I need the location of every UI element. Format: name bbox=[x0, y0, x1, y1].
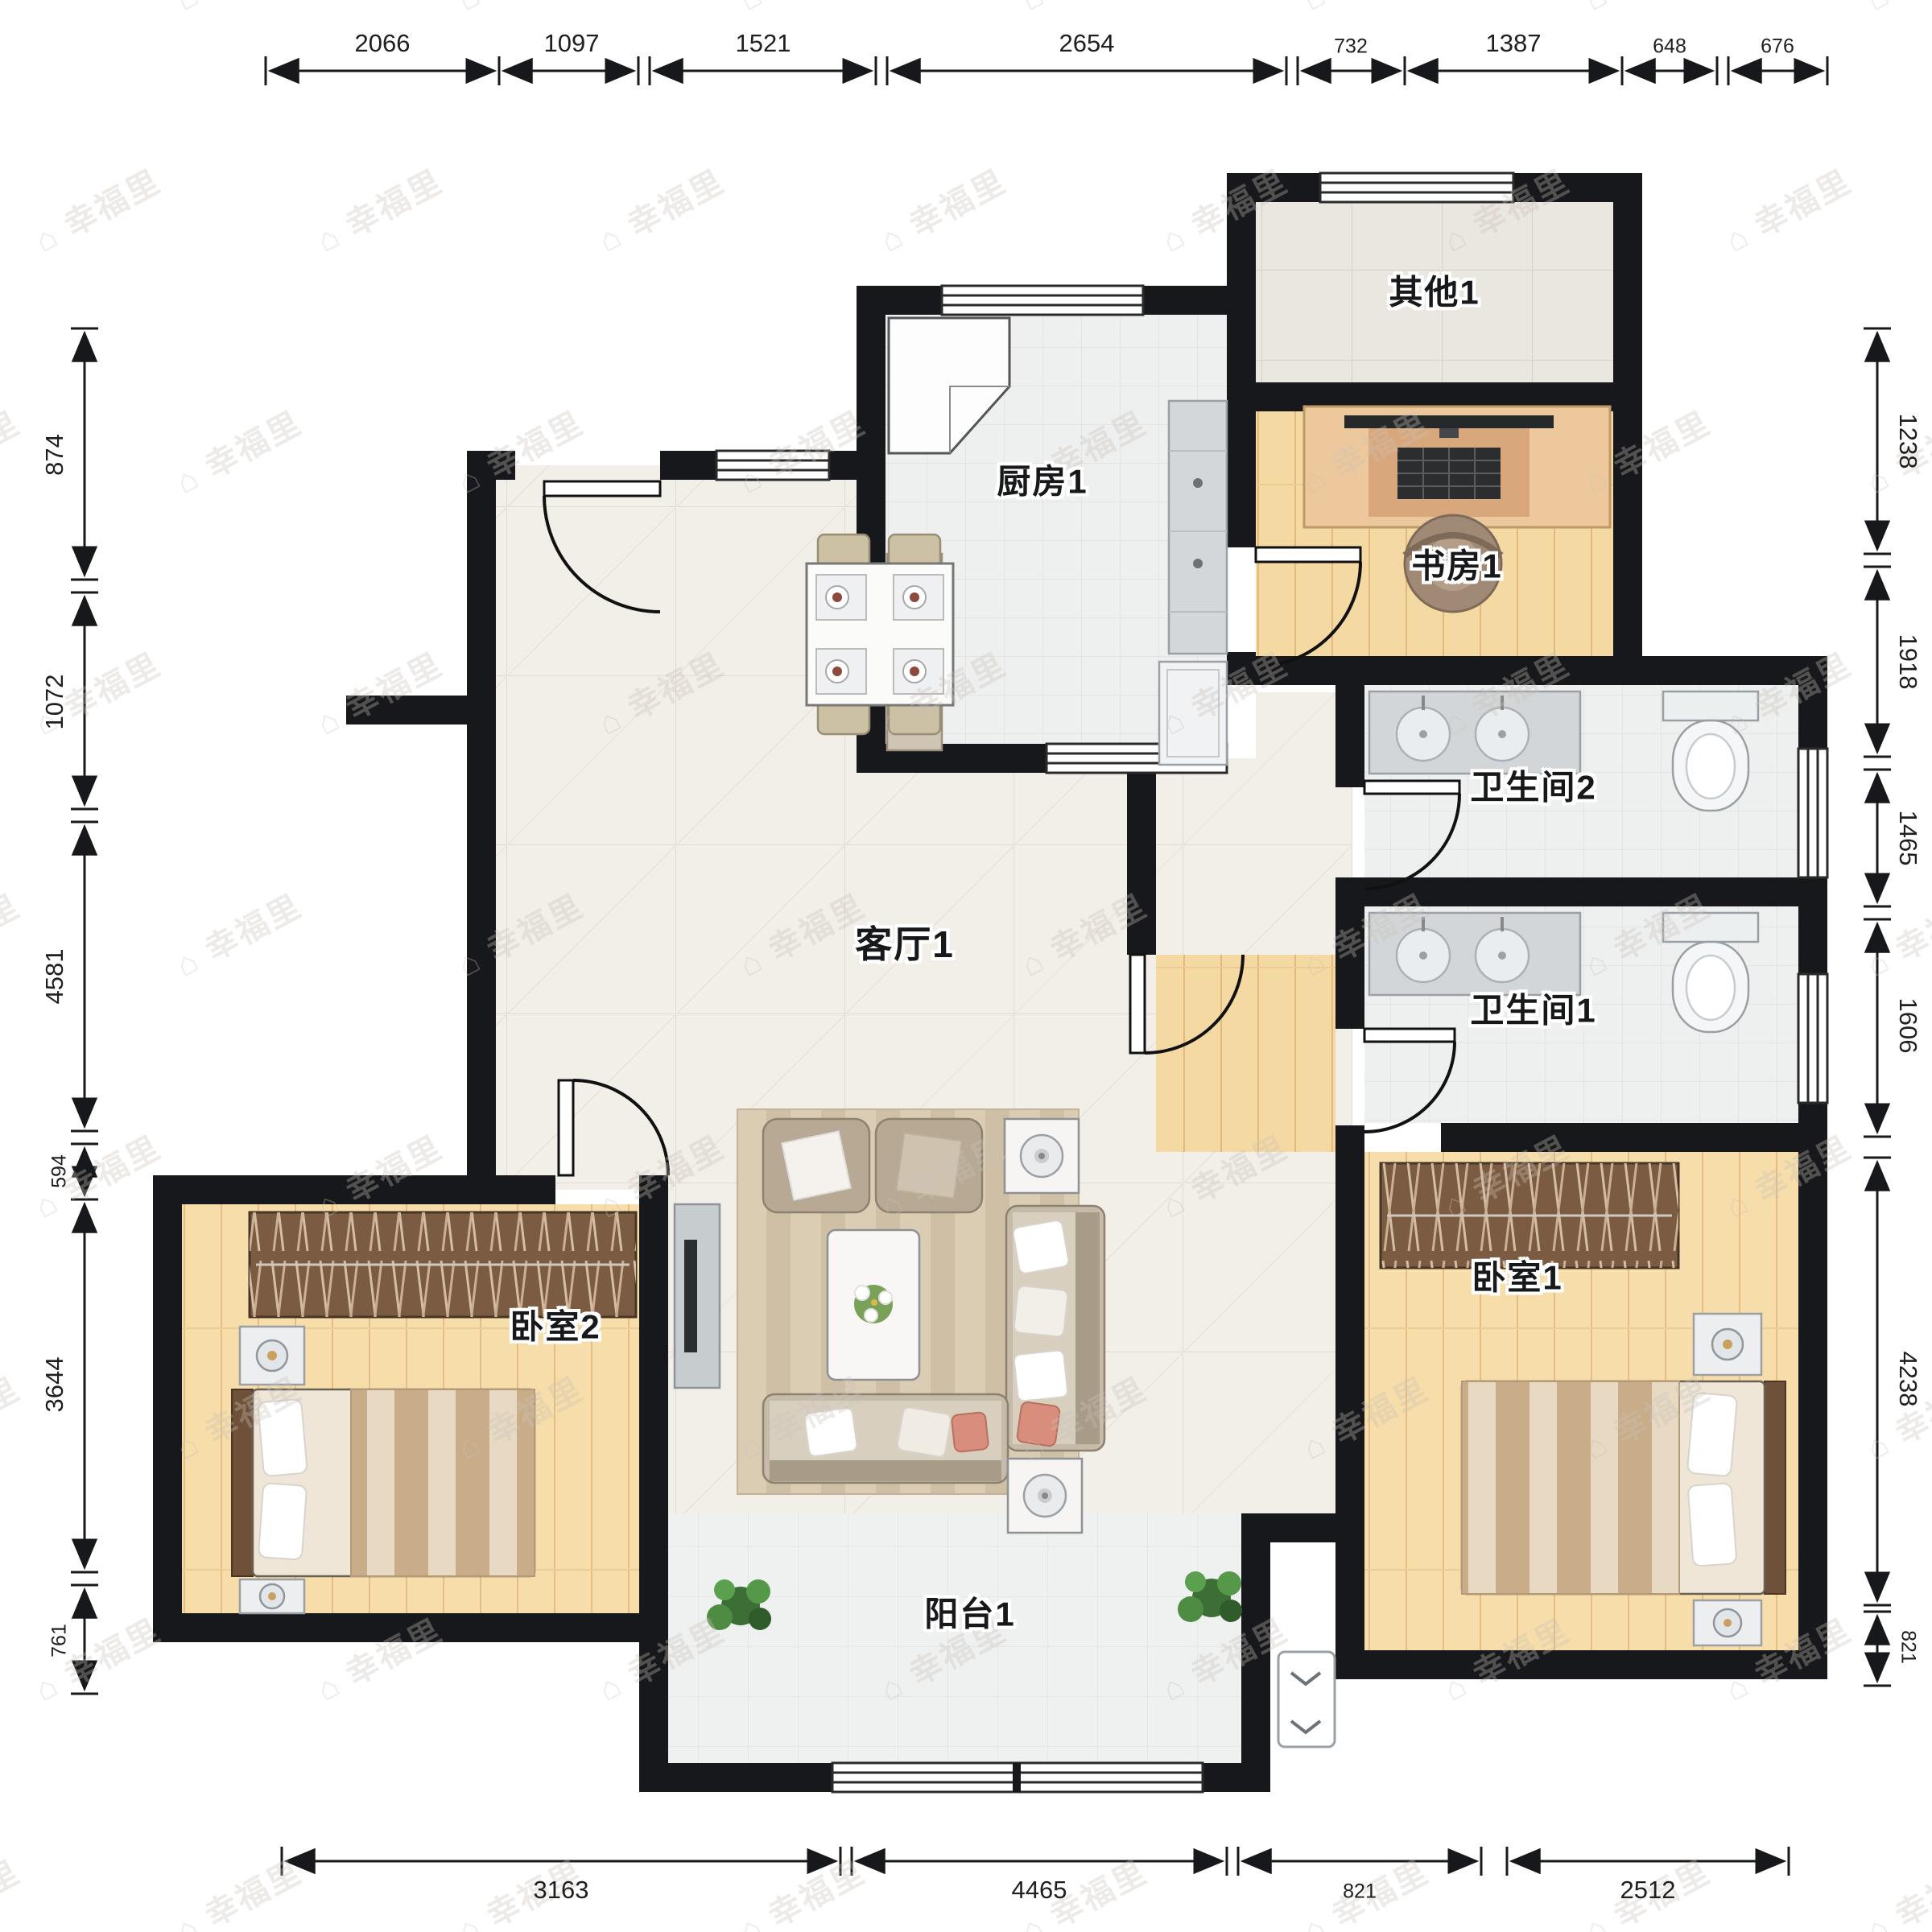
dimension-label: 1918 bbox=[1893, 634, 1922, 690]
dimension-label: 821 bbox=[1343, 1880, 1377, 1904]
desk bbox=[1304, 407, 1610, 527]
vestibule-floor bbox=[1156, 955, 1335, 1152]
room-label-study: 书房1 bbox=[1411, 539, 1502, 588]
armchair-1 bbox=[763, 1119, 869, 1212]
bedroom2-bed bbox=[232, 1389, 535, 1576]
dimension-label: 1465 bbox=[1893, 811, 1922, 866]
dimension-chain-left bbox=[71, 328, 98, 1694]
room-label-bath2: 卫生间2 bbox=[1470, 761, 1596, 810]
bedroom2-nightstand-top bbox=[240, 1327, 304, 1385]
bedroom1-bed bbox=[1462, 1381, 1785, 1594]
room-label-other: 其他1 bbox=[1389, 266, 1480, 315]
bedroom1-nightstand-bottom bbox=[1694, 1600, 1761, 1645]
dimension-label: 874 bbox=[40, 434, 69, 476]
dimension-label: 3644 bbox=[40, 1357, 69, 1413]
dimension-label: 648 bbox=[1653, 35, 1686, 59]
dimension-label: 2512 bbox=[1620, 1876, 1676, 1905]
bedroom2-nightstand-bottom bbox=[240, 1579, 304, 1613]
other-room-opening bbox=[1320, 173, 1513, 202]
sofa-bottom bbox=[763, 1394, 1008, 1483]
dimension-label: 4238 bbox=[1893, 1352, 1922, 1407]
dimension-label: 1606 bbox=[1893, 998, 1922, 1054]
dimension-chain-right bbox=[1864, 328, 1891, 1686]
dimension-label: 821 bbox=[1897, 1630, 1920, 1664]
dimension-label: 732 bbox=[1334, 35, 1368, 59]
dimension-label: 1238 bbox=[1893, 414, 1922, 469]
room-label-bath1: 卫生间1 bbox=[1470, 984, 1596, 1033]
dishwasher bbox=[1159, 662, 1227, 765]
room-label-bedroom1: 卧室1 bbox=[1472, 1251, 1563, 1300]
radiator bbox=[1278, 1652, 1335, 1747]
bedroom1-nightstand-top bbox=[1694, 1314, 1761, 1375]
dimension-label: 2654 bbox=[1059, 29, 1115, 58]
side-table-top bbox=[1005, 1119, 1079, 1193]
dimension-label: 2066 bbox=[355, 29, 411, 58]
floor-plan-canvas bbox=[0, 0, 1932, 1932]
sofa-main bbox=[1006, 1206, 1104, 1451]
dimension-chain-top bbox=[266, 56, 1827, 85]
room-label-kitchen: 厨房1 bbox=[997, 455, 1088, 504]
tv-console bbox=[675, 1204, 720, 1388]
bath1-window bbox=[1798, 974, 1827, 1103]
room-label-balcony: 阳台1 bbox=[924, 1587, 1015, 1637]
kitchen-window bbox=[942, 286, 1143, 315]
dining-table bbox=[807, 535, 953, 734]
dimension-label: 4465 bbox=[1012, 1876, 1067, 1905]
room-balcony-floor bbox=[668, 1513, 1241, 1763]
dimension-label: 761 bbox=[48, 1624, 72, 1657]
dimension-label: 4581 bbox=[40, 949, 69, 1005]
dimension-label: 676 bbox=[1761, 35, 1794, 59]
dimension-chain-bottom bbox=[282, 1847, 1789, 1876]
sofa-set bbox=[737, 1109, 1104, 1533]
side-table-bottom bbox=[1008, 1459, 1082, 1533]
armchair-2 bbox=[876, 1119, 982, 1212]
dimension-label: 1521 bbox=[736, 29, 791, 58]
dimension-label: 1072 bbox=[40, 675, 69, 730]
room-label-living: 客厅1 bbox=[855, 915, 955, 968]
room-label-bedroom2: 卧室2 bbox=[510, 1300, 601, 1349]
dimension-label: 594 bbox=[48, 1154, 72, 1188]
hall-window bbox=[716, 451, 829, 480]
balcony-window bbox=[832, 1763, 1203, 1792]
kitchen-counter bbox=[1169, 401, 1227, 654]
coffee-table bbox=[828, 1230, 919, 1380]
floor-plan: ⌂ 幸福里⌂ 幸福里⌂ 幸福里⌂ 幸福里⌂ 幸福里⌂ 幸福里⌂ 幸福里⌂ 幸福里… bbox=[0, 0, 1932, 1932]
dimension-label: 1097 bbox=[544, 29, 600, 58]
keyboard bbox=[1397, 448, 1501, 499]
bath2-window bbox=[1798, 749, 1827, 877]
dimension-label: 3163 bbox=[534, 1876, 589, 1905]
dimension-label: 1387 bbox=[1486, 29, 1542, 58]
